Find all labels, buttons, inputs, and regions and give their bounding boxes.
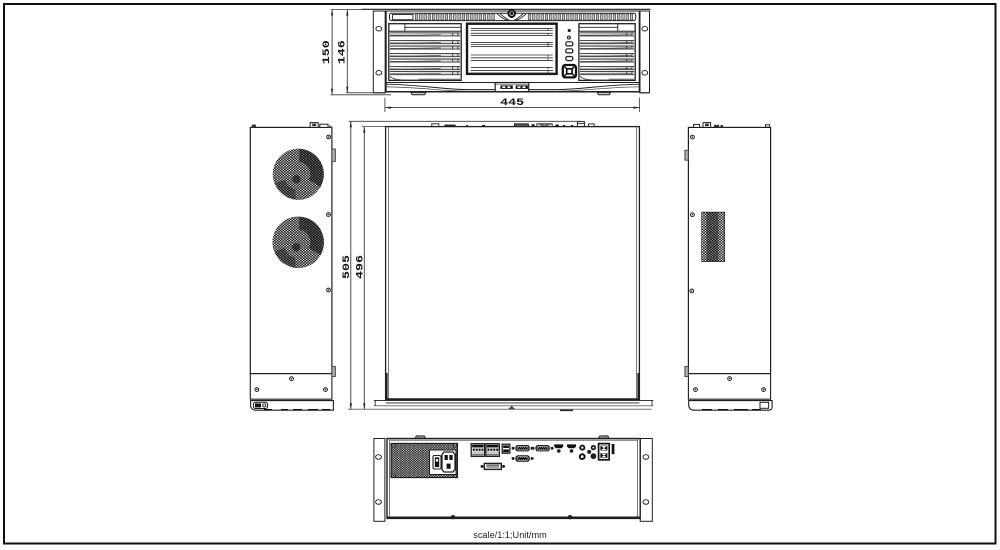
svg-text:150: 150 bbox=[321, 40, 333, 64]
svg-text:505: 505 bbox=[341, 255, 353, 279]
svg-text:146: 146 bbox=[336, 40, 348, 64]
svg-text:scale/1:1;Unit/mm: scale/1:1;Unit/mm bbox=[473, 530, 547, 540]
svg-text:445: 445 bbox=[500, 97, 524, 109]
svg-text:496: 496 bbox=[355, 255, 367, 279]
